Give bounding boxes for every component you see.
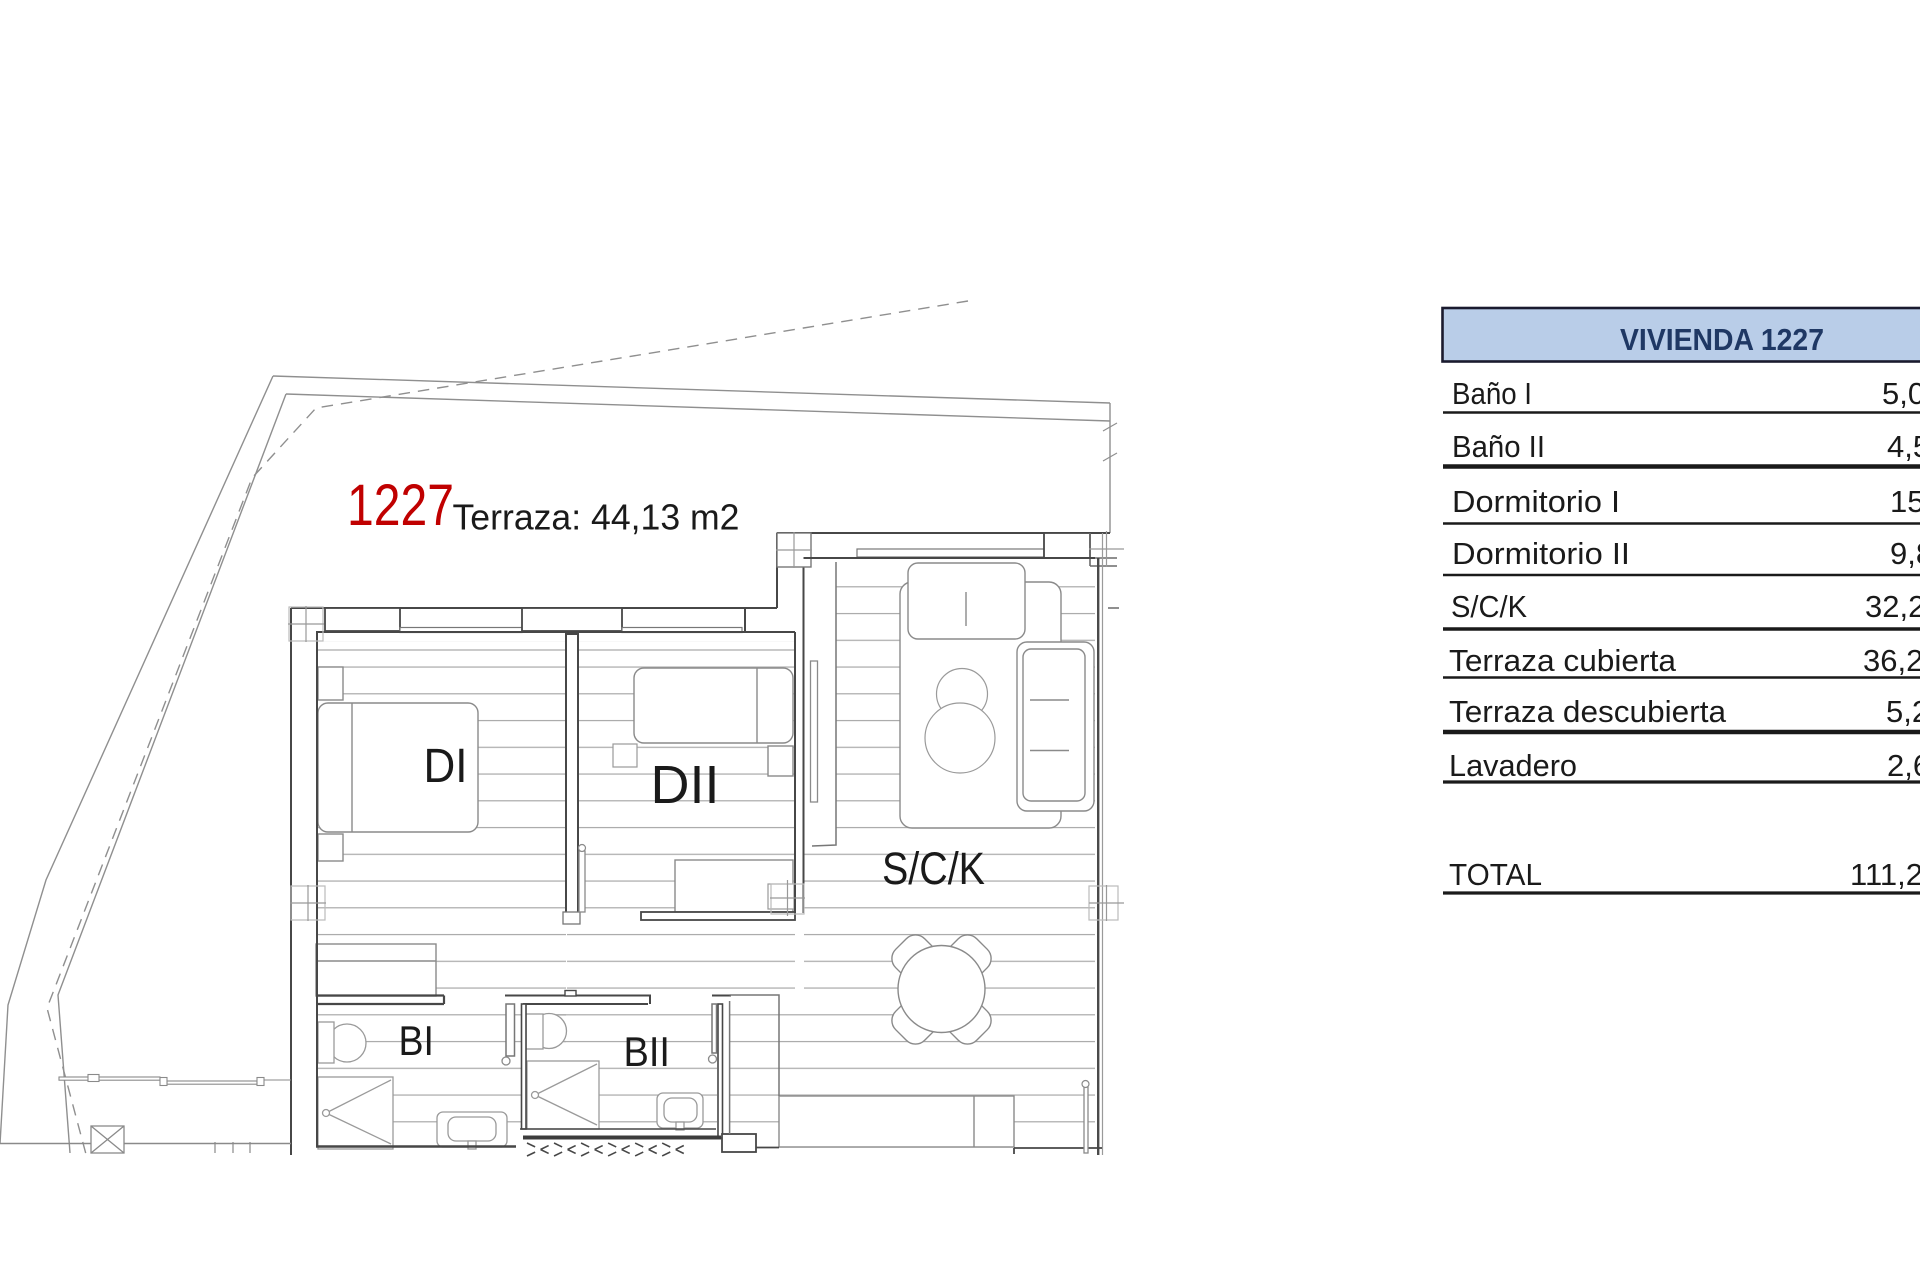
svg-text:36,25: 36,25 [1863,643,1920,678]
svg-text:VIVIENDA 1227: VIVIENDA 1227 [1620,322,1824,357]
svg-text:S/C/K: S/C/K [882,843,985,894]
svg-text:111,25: 111,25 [1850,857,1920,892]
svg-text:32,25: 32,25 [1865,589,1920,624]
svg-text:DI: DI [424,740,468,793]
svg-text:5,25: 5,25 [1886,694,1920,729]
svg-text:S/C/K: S/C/K [1451,589,1527,624]
svg-text:Terraza cubierta: Terraza cubierta [1449,643,1677,678]
svg-text:Lavadero: Lavadero [1449,748,1577,783]
svg-text:5,05: 5,05 [1882,376,1920,411]
svg-text:Dormitorio II: Dormitorio II [1452,536,1630,571]
svg-text:2,65: 2,65 [1887,748,1920,783]
svg-text:4,55: 4,55 [1887,429,1920,464]
svg-text:Terraza descubierta: Terraza descubierta [1449,694,1727,729]
svg-text:Terraza: 44,13 m2: Terraza: 44,13 m2 [453,497,740,538]
svg-text:BII: BII [624,1028,671,1075]
svg-text:Dormitorio I: Dormitorio I [1452,484,1620,519]
svg-text:1227: 1227 [347,473,454,538]
svg-text:BI: BI [399,1017,435,1064]
svg-text:Baño II: Baño II [1452,429,1545,464]
svg-text:TOTAL: TOTAL [1449,857,1542,892]
svg-text:9,85: 9,85 [1890,536,1920,571]
svg-text:15,3: 15,3 [1890,484,1920,519]
svg-text:Baño I: Baño I [1452,376,1532,411]
svg-text:DII: DII [651,755,720,815]
